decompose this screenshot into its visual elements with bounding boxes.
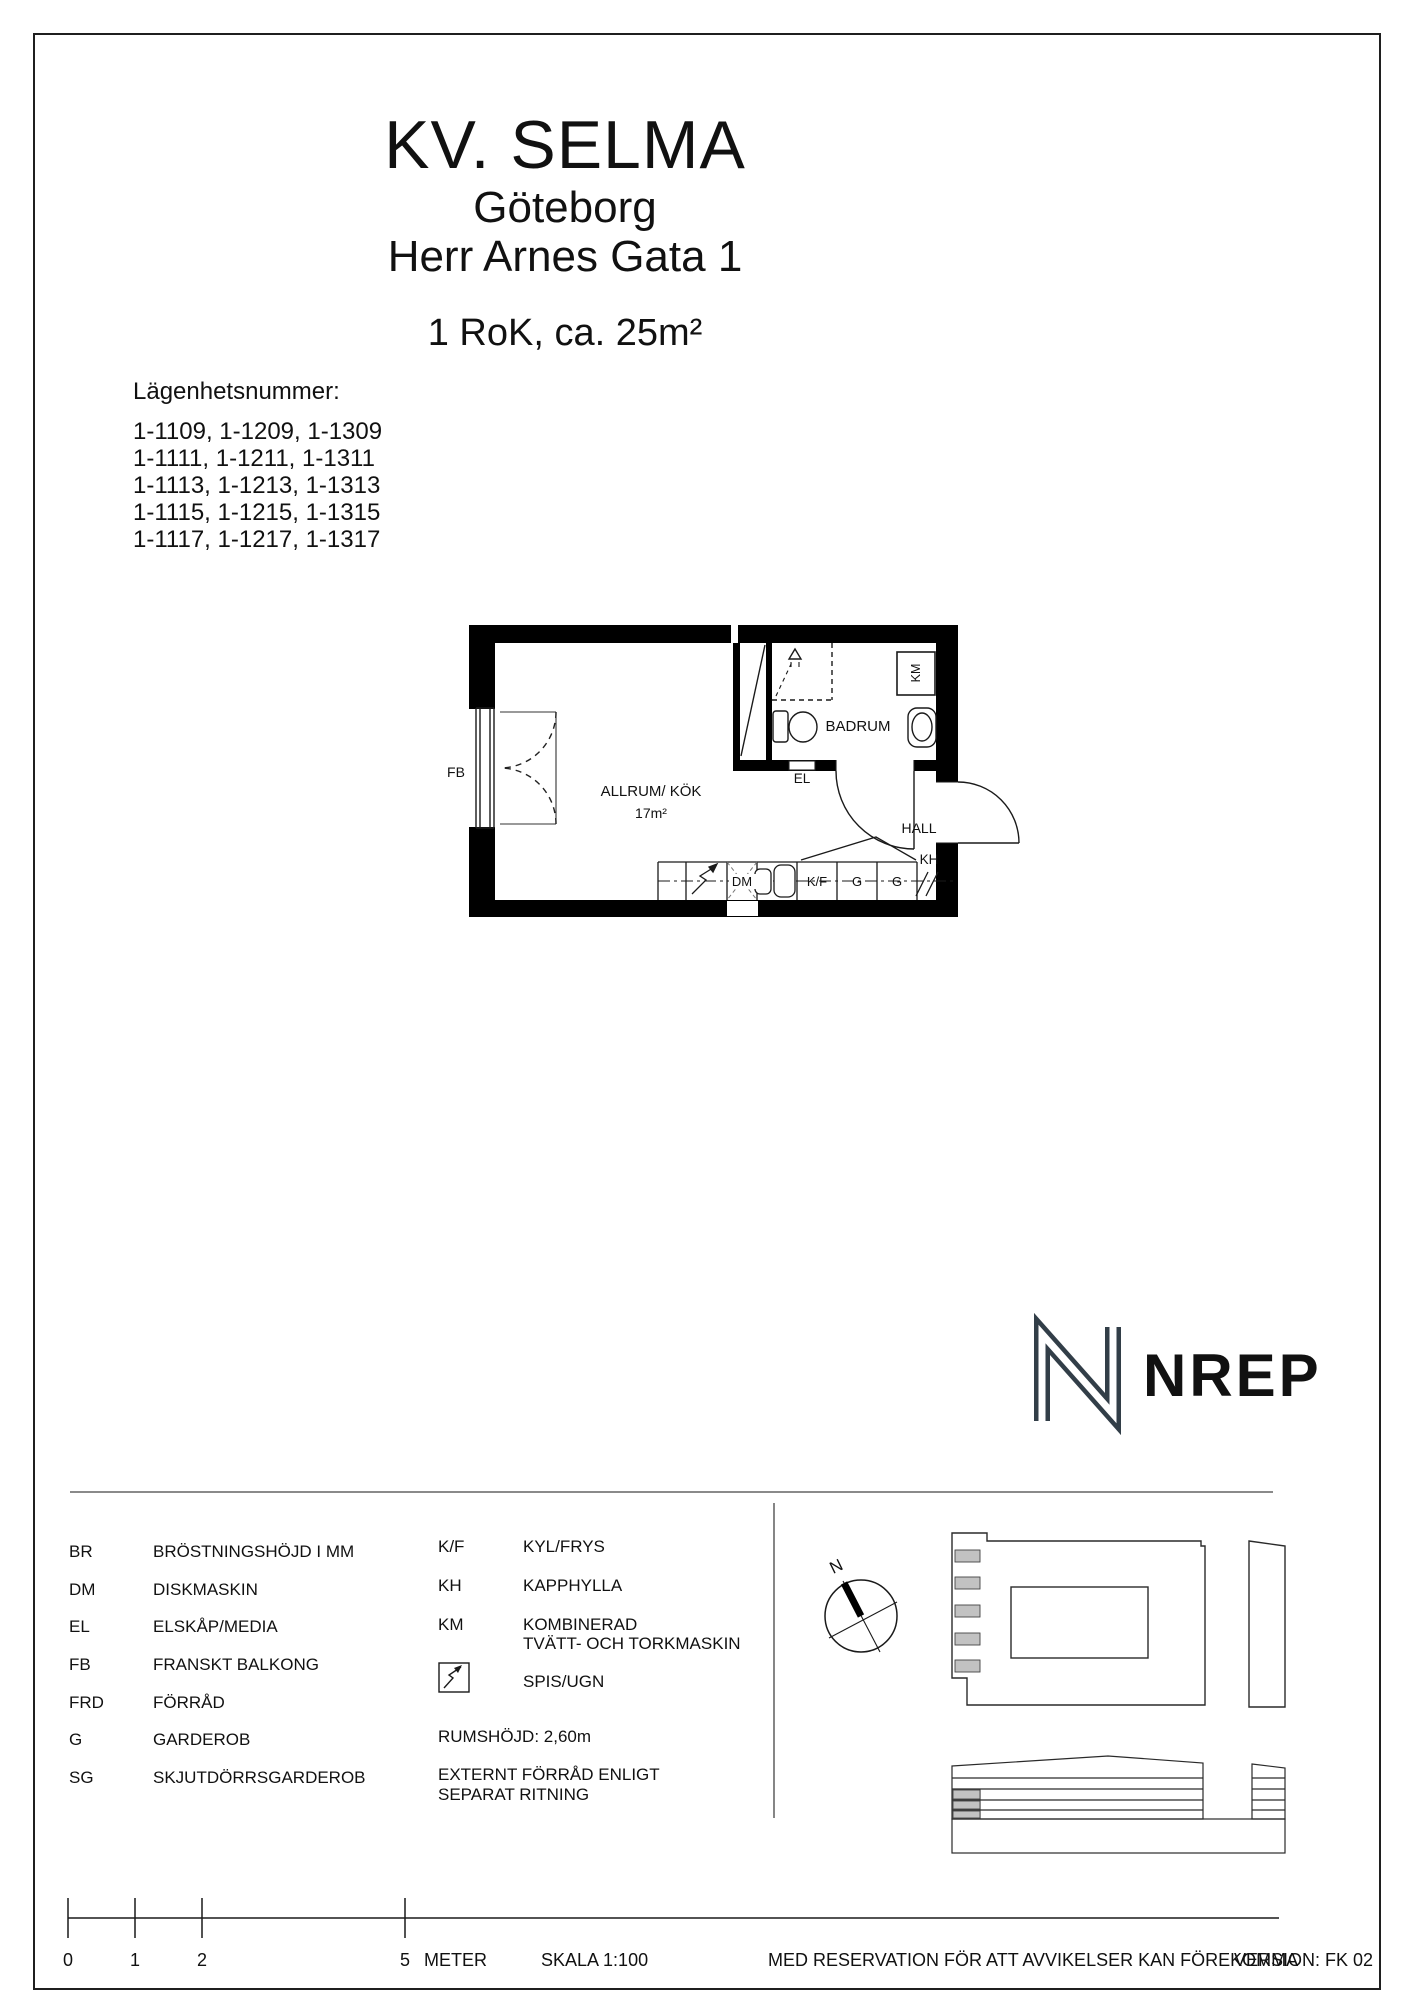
walls	[469, 625, 958, 917]
bathroom-wall	[733, 760, 836, 771]
label-coat-rack: KH	[920, 852, 939, 867]
legend-abbr: KH	[438, 1576, 462, 1596]
cabinet-marks	[801, 837, 916, 860]
legend-desc: GARDEROB	[153, 1730, 250, 1750]
external-storage-note: EXTERNT FÖRRÅD ENLIGT SEPARAT RITNING	[438, 1765, 660, 1805]
legend-abbr: FRD	[69, 1693, 104, 1713]
floor-plan: FB ALLRUM/ KÖK 17m² BADRUM EL HALL KH KM…	[447, 625, 1019, 917]
scale-tick-label-1: 1	[120, 1950, 150, 1971]
label-wardrobe-1: G	[852, 874, 862, 889]
shaft-diagonal	[741, 645, 765, 756]
nrep-logo: NREP	[1042, 1327, 1322, 1421]
plan-labels: FB ALLRUM/ KÖK 17m² BADRUM EL HALL KH KM…	[447, 664, 938, 889]
legend-abbr: DM	[69, 1580, 95, 1600]
label-washing-machine: KM	[909, 664, 923, 683]
shaft-wall-right	[766, 643, 772, 760]
wall-joint	[727, 901, 758, 916]
label-french-balcony: FB	[447, 764, 465, 780]
label-fridge-freezer: K/F	[807, 874, 827, 889]
legend-desc: FÖRRÅD	[153, 1693, 225, 1713]
nrep-logo-text: NREP	[1143, 1342, 1322, 1409]
shower-outline	[772, 643, 832, 700]
shower-head-icon	[789, 649, 801, 659]
legend-abbr: BR	[69, 1542, 93, 1562]
legend-stove-desc: SPIS/UGN	[523, 1672, 604, 1692]
label-bathroom: BADRUM	[825, 718, 890, 735]
north-arrow-icon: N	[825, 1555, 897, 1652]
floorplan-sheet: KV. SELMA Göteborg Herr Arnes Gata 1 1 R…	[0, 0, 1413, 2000]
shaft-wall-left	[733, 643, 740, 760]
legend-desc: DISKMASKIN	[153, 1580, 258, 1600]
entry-door	[936, 782, 1019, 843]
electrical-cabinet-icon	[789, 761, 815, 770]
legend-desc: ELSKÅP/MEDIA	[153, 1617, 278, 1637]
scale-bar	[68, 1898, 1279, 1938]
french-balcony	[476, 708, 556, 828]
legend-desc: KYL/FRYS	[523, 1537, 605, 1557]
legend-abbr: K/F	[438, 1537, 464, 1557]
legend-desc: KOMBINERAD TVÄTT- OCH TORKMASKIN	[523, 1615, 741, 1653]
version-label: VERSION: FK 02	[1100, 1950, 1373, 1971]
legend-desc: SKJUTDÖRRSGARDEROB	[153, 1768, 366, 1788]
scale-unit-label: METER	[424, 1950, 487, 1971]
legend-desc: FRANSKT BALKONG	[153, 1655, 319, 1675]
kitchen-sink-icon	[755, 869, 771, 894]
scale-ratio-label: SKALA 1:100	[541, 1950, 648, 1971]
site-plan-upper	[952, 1533, 1285, 1707]
legend-abbr: G	[69, 1730, 82, 1750]
kitchen-counter	[658, 837, 955, 900]
site-plan-lower	[952, 1756, 1285, 1853]
legend-abbr: SG	[69, 1768, 94, 1788]
legend-abbr: EL	[69, 1617, 90, 1637]
legend-abbr: FB	[69, 1655, 91, 1675]
room-height-note: RUMSHÖJD: 2,60m	[438, 1727, 591, 1747]
scale-tick-label-5: 5	[390, 1950, 420, 1971]
scale-tick-label-0: 0	[53, 1950, 83, 1971]
scale-tick-label-2: 2	[187, 1950, 217, 1971]
label-wardrobe-2: G	[892, 874, 902, 889]
legend-desc: KAPPHYLLA	[523, 1576, 622, 1596]
label-hall: HALL	[901, 820, 936, 836]
legend-desc: BRÖSTNINGSHÖJD I MM	[153, 1542, 354, 1562]
coat-rack-icon	[916, 872, 938, 896]
wall-joint	[731, 625, 738, 643]
compass-north-label: N	[827, 1555, 846, 1577]
legend-abbr: KM	[438, 1615, 464, 1635]
label-livingroom: ALLRUM/ KÖK	[601, 782, 702, 800]
stove-legend-icon	[438, 1662, 472, 1696]
label-area: 17m²	[635, 805, 667, 821]
label-dishwasher: DM	[732, 874, 752, 889]
label-electrical: EL	[794, 771, 811, 786]
toilet-icon	[773, 711, 788, 742]
